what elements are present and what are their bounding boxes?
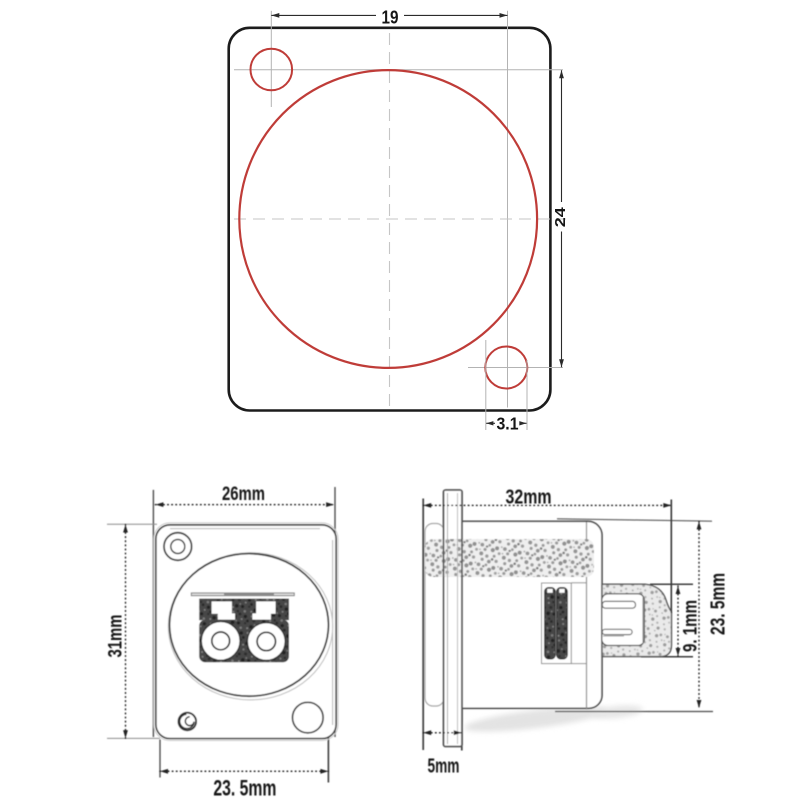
svg-text:19: 19 [382, 7, 399, 27]
svg-text:31mm: 31mm [106, 615, 127, 658]
svg-text:24: 24 [552, 207, 569, 228]
svg-text:9. 1mm: 9. 1mm [681, 600, 702, 652]
svg-text:23. 5mm: 23. 5mm [213, 776, 276, 800]
svg-text:32mm: 32mm [506, 487, 552, 509]
svg-text:3.1: 3.1 [497, 414, 519, 434]
svg-text:5mm: 5mm [428, 755, 460, 778]
svg-text:26mm: 26mm [222, 484, 265, 505]
svg-text:23. 5mm: 23. 5mm [708, 573, 730, 635]
